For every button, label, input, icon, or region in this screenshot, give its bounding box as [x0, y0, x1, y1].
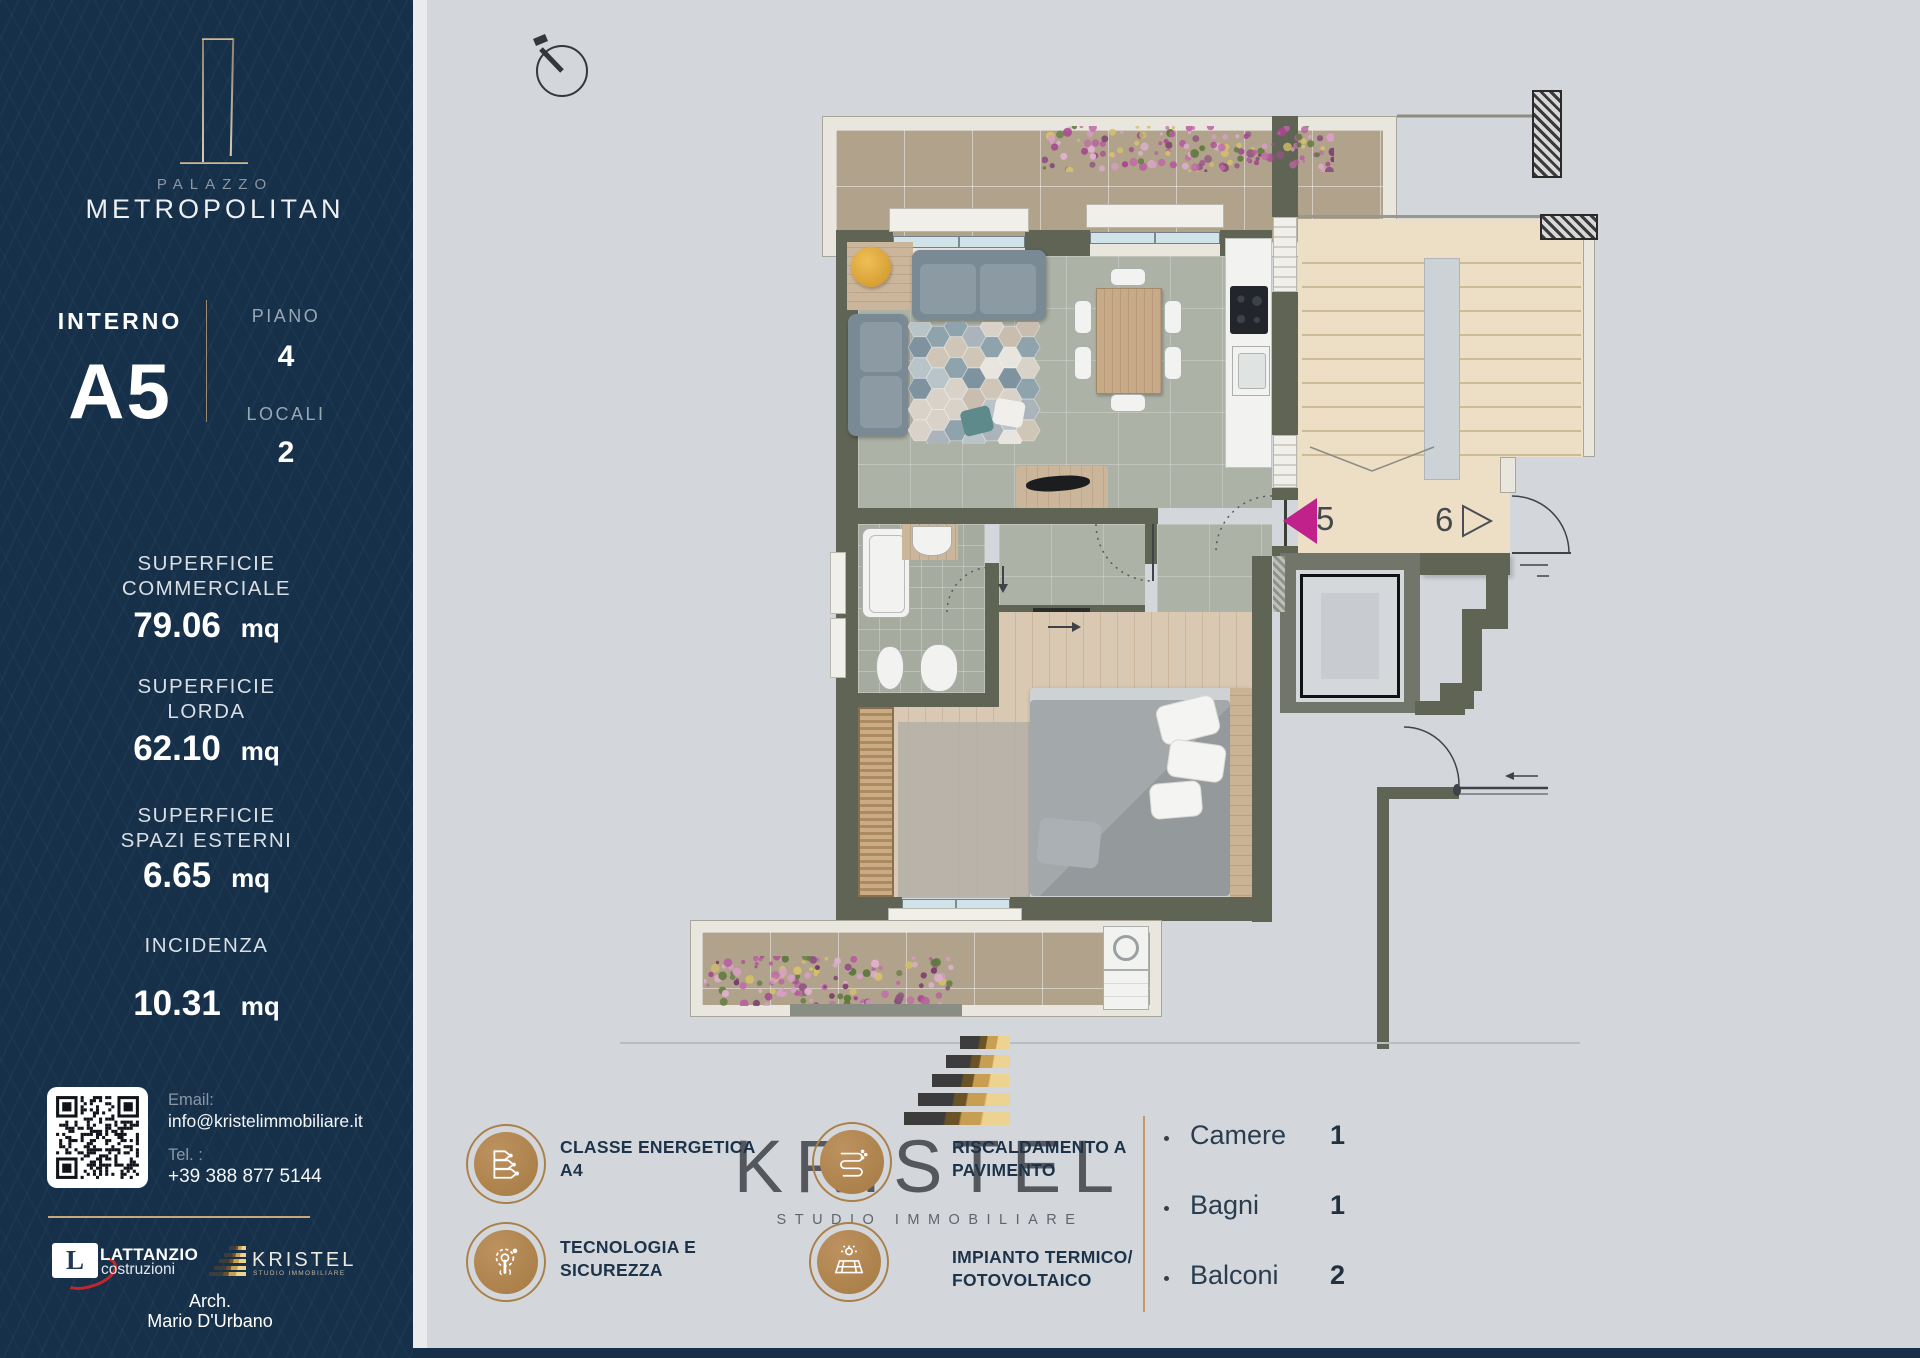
metric-unit: mq	[231, 863, 270, 893]
flower-planter	[704, 956, 954, 1006]
legend-value: 2	[1330, 1260, 1390, 1291]
unit-divider	[206, 300, 207, 422]
metric-label: SUPERFICIE COMMERCIALE	[20, 551, 393, 601]
stair-right-wall	[1583, 219, 1595, 457]
corridor-wall	[1377, 787, 1459, 799]
window-left	[830, 618, 846, 678]
feature-label: TECNOLOGIA E SICUREZZA	[560, 1236, 820, 1282]
dining-chair	[1164, 346, 1182, 380]
sidebar: PALAZZO METROPOLITAN INTERNO A5 PIANO 4 …	[0, 0, 413, 1358]
metric-value: 62.10mq	[20, 729, 393, 769]
dining-chair	[1074, 300, 1092, 334]
metric-number: 6.65	[143, 856, 211, 895]
unit-marker-label: 6	[1435, 501, 1453, 539]
dining-chair	[1074, 346, 1092, 380]
architect-title: Arch.	[110, 1291, 310, 1312]
feature-line: PAVIMENTO	[952, 1159, 1172, 1182]
entrance-door-leaf	[1284, 500, 1287, 548]
edge-strip	[413, 0, 427, 1348]
metric-unit: mq	[241, 736, 280, 766]
feature-label: RISCALDAMENTO A PAVIMENTO	[952, 1136, 1172, 1182]
metric-label-line: LORDA	[20, 699, 393, 724]
wardrobe	[858, 707, 894, 897]
shaft-wall	[1273, 556, 1285, 612]
legend-bullet	[1164, 1206, 1169, 1211]
legend-value: 1	[1330, 1190, 1390, 1221]
corridor-wall	[1462, 629, 1482, 691]
architect-name: Mario D'Urbano	[85, 1311, 335, 1332]
glass-block-panel	[1273, 217, 1297, 292]
wall-segment	[1272, 292, 1298, 435]
kristel-sub: STUDIO IMMOBILIARE	[253, 1270, 345, 1277]
pillow	[1149, 780, 1204, 820]
window-left	[830, 552, 846, 614]
energy-class-badge	[466, 1124, 546, 1204]
legend-label: Camere	[1190, 1120, 1340, 1151]
metric-label: SUPERFICIE SPAZI ESTERNI	[20, 803, 393, 853]
sofa-cushion	[920, 264, 976, 314]
corridor-wall	[1462, 609, 1508, 629]
stair-runner	[1424, 258, 1460, 480]
legend-value: 1	[1330, 1120, 1390, 1151]
hallway-floor	[999, 524, 1145, 612]
floor-heating-icon	[820, 1130, 884, 1194]
email-label: Email:	[168, 1091, 388, 1110]
sidebar-divider	[48, 1216, 310, 1218]
sofa-cushion	[860, 376, 902, 428]
corridor-wall	[1377, 799, 1389, 1049]
interno-label: INTERNO	[40, 308, 200, 335]
kristel-logo-icon	[208, 1246, 246, 1277]
metric-label-line: SUPERFICIE	[20, 551, 393, 576]
wall-segment	[1272, 488, 1298, 500]
feature-line: SICUREZZA	[560, 1259, 820, 1282]
elevator-cab-inner	[1321, 593, 1379, 679]
sink-basin	[1238, 353, 1266, 389]
metric-label: SUPERFICIE LORDA	[20, 674, 393, 724]
feature-line: TECNOLOGIA E	[560, 1236, 820, 1259]
sofa-cushion	[860, 322, 902, 372]
brochure-page: 5 6 KRISTEL STUDIO IMMOBILIARE	[0, 0, 1920, 1358]
metric-number: 79.06	[133, 606, 221, 645]
metric-label-line: SPAZI ESTERNI	[20, 828, 393, 853]
metric-value: 10.31mq	[20, 984, 393, 1024]
headboard	[1230, 688, 1252, 905]
metric-label: INCIDENZA	[20, 933, 393, 958]
legend-label: Bagni	[1190, 1190, 1340, 1221]
existing-wall-hatch	[1532, 90, 1562, 178]
washing-machine	[1103, 926, 1149, 970]
stair-treads-left	[1302, 240, 1428, 458]
planter-box	[790, 1004, 962, 1016]
throw-pillow	[992, 398, 1026, 429]
brand-name: METROPOLITAN	[18, 194, 412, 225]
existing-wall-hatch	[1540, 214, 1598, 240]
metric-label-line: SUPERFICIE	[20, 803, 393, 828]
sofa-cushion	[980, 264, 1036, 314]
bathtub-inner	[869, 535, 905, 613]
locali-label: LOCALI	[226, 404, 346, 425]
solar-badge	[809, 1222, 889, 1302]
metric-unit: mq	[241, 991, 280, 1021]
wall-right	[1252, 556, 1272, 922]
landing-door-jamb	[1500, 457, 1516, 493]
elevator-cab	[1300, 574, 1400, 698]
metric-label-line: INCIDENZA	[20, 933, 393, 958]
dining-chair	[1110, 268, 1146, 286]
stair-treads-right	[1458, 240, 1581, 458]
technology-security-icon	[474, 1230, 538, 1294]
window-sill	[1086, 204, 1224, 228]
dining-chair	[1110, 394, 1146, 412]
glass-block-panel	[1273, 435, 1297, 488]
bedroom-rug	[898, 722, 1048, 898]
toilet	[920, 644, 958, 692]
metric-number: 62.10	[133, 729, 221, 768]
metric-number: 10.31	[133, 984, 221, 1023]
floor-heating-badge	[812, 1122, 892, 1202]
kitchen-sink	[1232, 346, 1270, 396]
cooktop	[1230, 286, 1268, 334]
sofa	[848, 314, 908, 436]
footer-divider	[620, 1042, 1580, 1044]
wall-segment	[1010, 897, 1272, 921]
window-sill	[889, 208, 1029, 232]
dining-table	[1096, 288, 1162, 394]
bathroom-sink	[912, 526, 952, 556]
bidet	[876, 646, 904, 690]
email-value: info@kristelimmobiliare.it	[168, 1111, 398, 1132]
tel-label: Tel. :	[168, 1146, 388, 1165]
round-coffee-table	[851, 247, 891, 287]
piano-value: 4	[226, 340, 346, 374]
kristel-name: KRISTEL	[252, 1249, 356, 1272]
dining-chair	[1164, 300, 1182, 334]
energy-class-icon	[474, 1132, 538, 1196]
flower-planter	[1042, 126, 1334, 172]
feature-line: IMPIANTO TERMICO/	[952, 1246, 1182, 1269]
bathroom-wall	[985, 563, 999, 693]
metric-label-line: COMMERCIALE	[20, 576, 393, 601]
piano-label: PIANO	[226, 306, 346, 327]
sofa	[912, 250, 1046, 320]
feature-line: A4	[560, 1159, 820, 1182]
technology-security-badge	[466, 1222, 546, 1302]
kristel-watermark-sub: STUDIO IMMOBILIARE	[700, 1212, 1160, 1228]
feature-line: RISCALDAMENTO A	[952, 1136, 1172, 1159]
laundry-cabinet	[1103, 970, 1149, 1010]
bathroom-wall	[836, 693, 999, 707]
metric-label-line: SUPERFICIE	[20, 674, 393, 699]
lattanzio-sub: costruzioni	[101, 1261, 175, 1279]
qr-code	[47, 1087, 148, 1188]
door-jamb	[1145, 524, 1157, 564]
window	[1090, 232, 1220, 244]
corridor-wall	[1420, 553, 1510, 575]
pillow	[1166, 738, 1228, 784]
kristel-building-icon	[902, 1036, 1010, 1128]
feature-line: FOTOVOLTAICO	[952, 1269, 1182, 1292]
hall-wall	[836, 508, 1158, 524]
washer-drum	[1113, 935, 1139, 961]
tel-value: +39 388 877 5144	[168, 1166, 398, 1188]
interno-value: A5	[40, 346, 200, 437]
locali-value: 2	[226, 436, 346, 470]
metric-value: 6.65mq	[20, 856, 393, 896]
feature-line: CLASSE ENERGETICA	[560, 1136, 820, 1159]
metric-value: 79.06mq	[20, 606, 393, 646]
metric-unit: mq	[241, 613, 280, 643]
corridor-wall	[1415, 701, 1465, 715]
solar-icon	[817, 1230, 881, 1294]
feature-label: CLASSE ENERGETICA A4	[560, 1136, 820, 1182]
unit-marker-label: 5	[1316, 500, 1334, 538]
feature-label: IMPIANTO TERMICO/ FOTOVOLTAICO	[952, 1246, 1182, 1292]
brand-palazzo: PALAZZO	[60, 176, 370, 193]
corridor-wall	[1486, 575, 1508, 611]
bed-throw	[1036, 817, 1102, 869]
legend-label: Balconi	[1190, 1260, 1340, 1291]
